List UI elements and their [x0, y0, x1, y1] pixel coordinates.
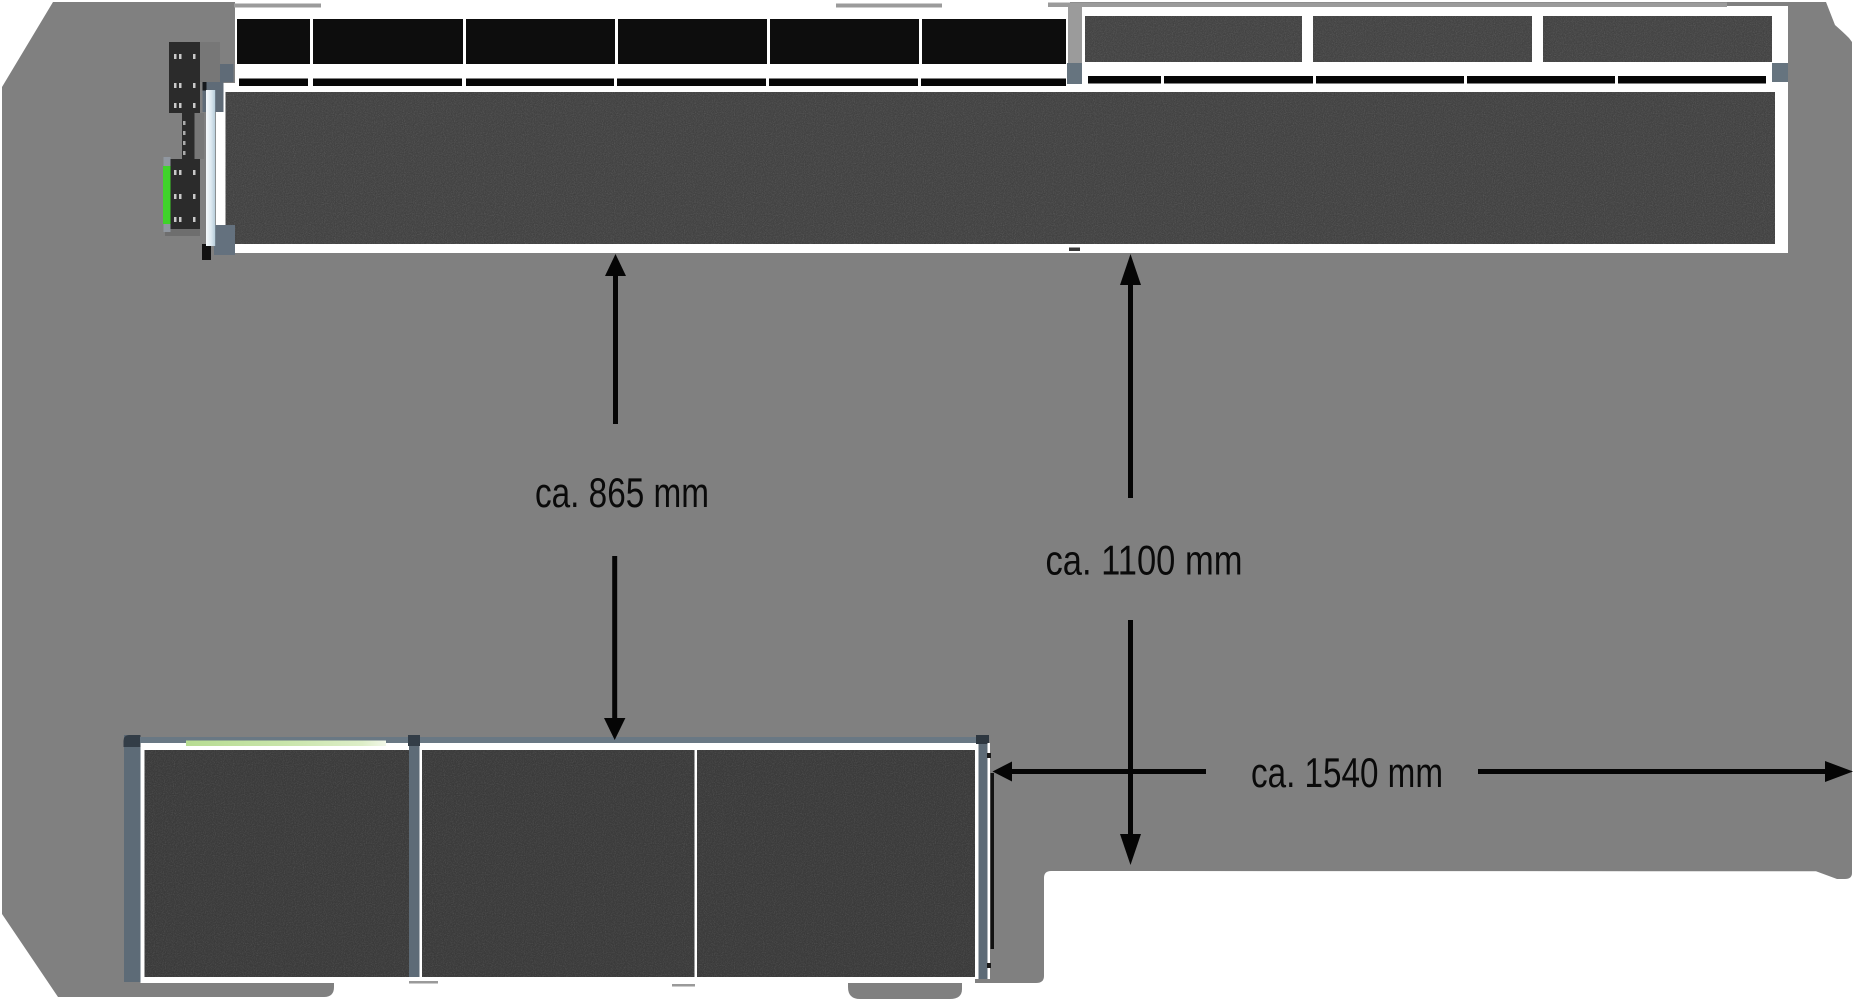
svg-text:ca. 1540 mm: ca. 1540 mm	[1251, 749, 1443, 796]
svg-text:ca. 1100 mm: ca. 1100 mm	[1046, 537, 1243, 584]
svg-text:ca. 865 mm: ca. 865 mm	[535, 469, 709, 516]
